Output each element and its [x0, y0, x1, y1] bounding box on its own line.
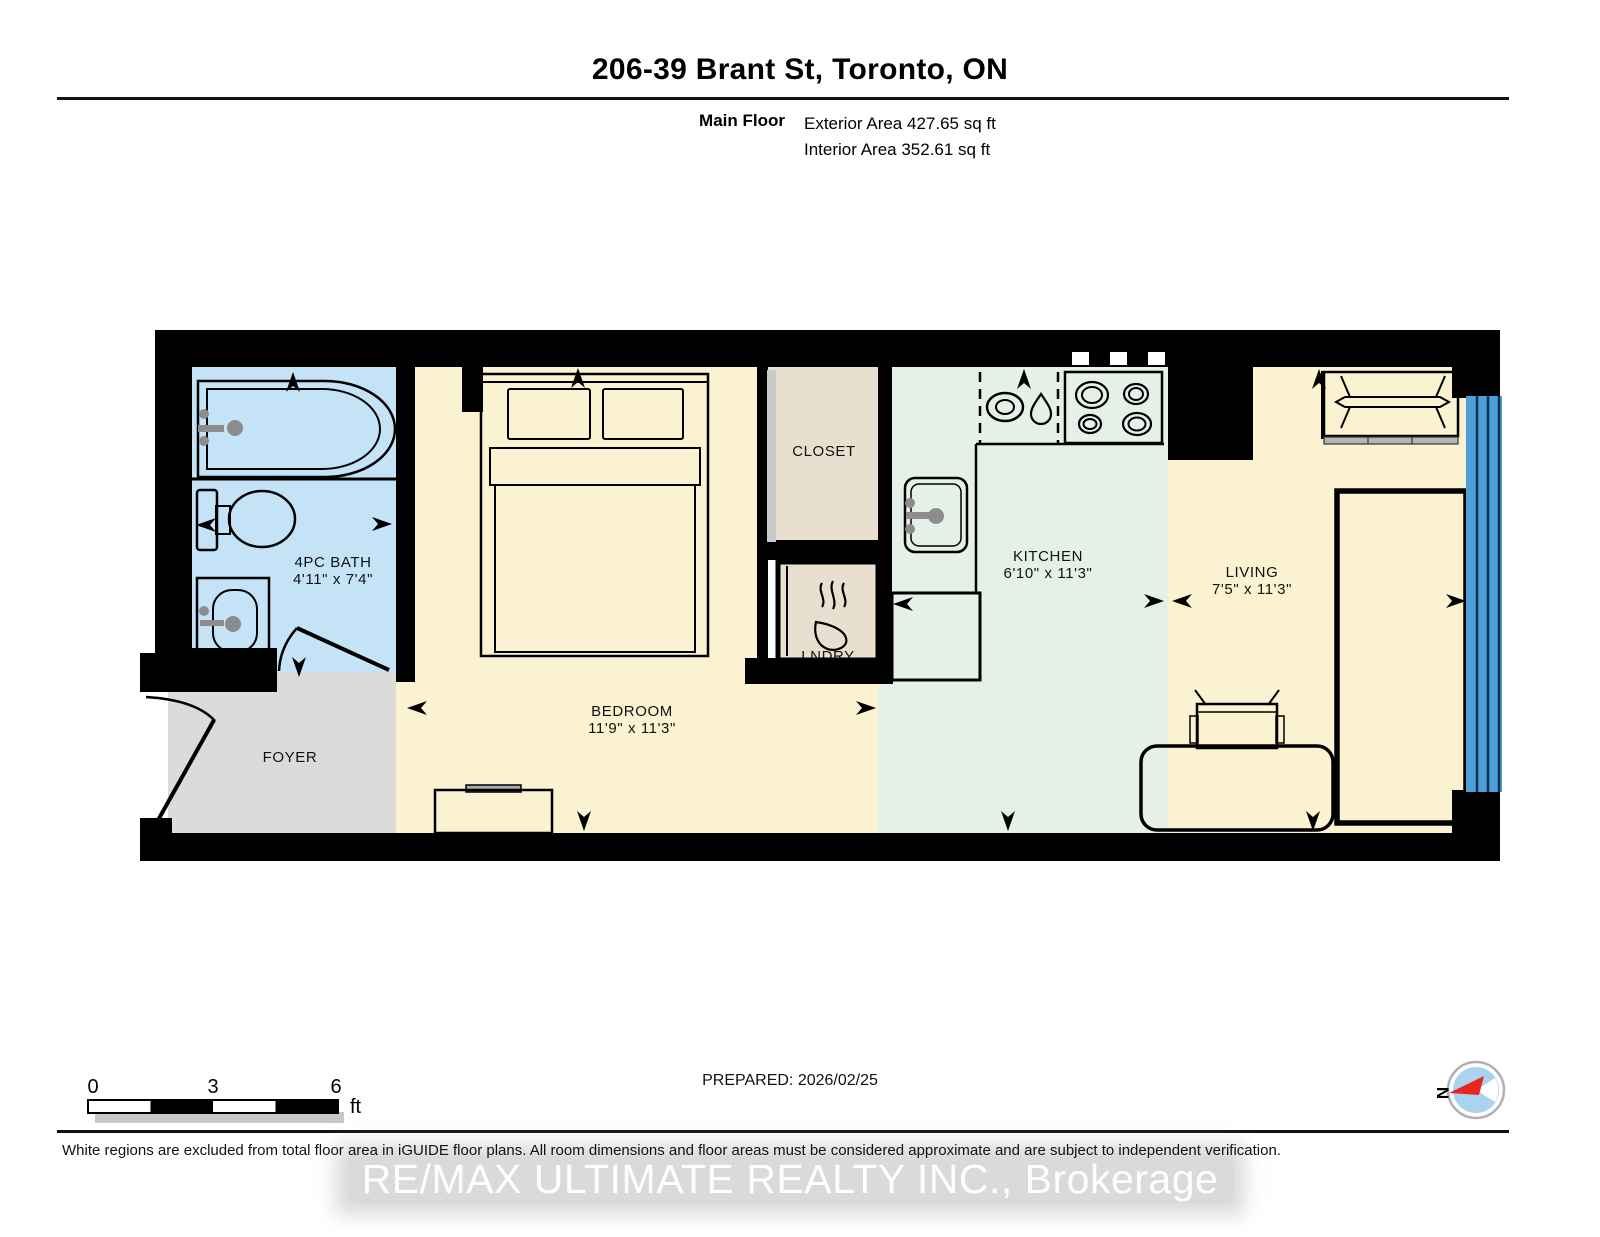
- disclaimer-text: White regions are excluded from total fl…: [62, 1142, 1542, 1159]
- cabinet-tick: [1110, 352, 1127, 365]
- prepared-date: PREPARED: 2026/02/25: [0, 1072, 1580, 1090]
- bath-dims: 4'11" x 7'4": [293, 571, 373, 588]
- bath-label: 4PC BATH: [294, 554, 371, 571]
- closet-label: CLOSET: [792, 443, 856, 460]
- living-label: LIVING: [1226, 564, 1279, 581]
- laundry-closet: LNDRY: [778, 562, 878, 665]
- foyer-label: FOYER: [263, 749, 318, 766]
- closet-door-track: [767, 370, 776, 542]
- scale-unit: ft: [350, 1096, 362, 1118]
- living-dims: 7'5" x 11'3": [1212, 581, 1292, 598]
- counter-strip: [1324, 437, 1458, 444]
- tub-faucet: [198, 425, 224, 432]
- brokerage-watermark: RE/MAX ULTIMATE REALTY INC., Brokerage: [348, 1156, 1233, 1203]
- footer-divider: [57, 1130, 1509, 1133]
- window-wall: [1466, 396, 1502, 792]
- bedroom-label: BEDROOM: [591, 703, 673, 720]
- cabinet-tick: [1072, 352, 1089, 365]
- floor-plan-canvas: LNDRY: [0, 0, 1600, 1237]
- compass-icon: N: [1433, 1062, 1504, 1118]
- foyer-threshold: [277, 672, 407, 692]
- kitchen-floor: [878, 367, 1168, 833]
- kitchen-dims: 6'10" x 11'3": [1004, 565, 1093, 582]
- kitchen-label: KITCHEN: [1013, 548, 1083, 565]
- bedroom-dims: 11'9" x 11'3": [588, 720, 676, 737]
- cabinet-tick: [1148, 352, 1165, 365]
